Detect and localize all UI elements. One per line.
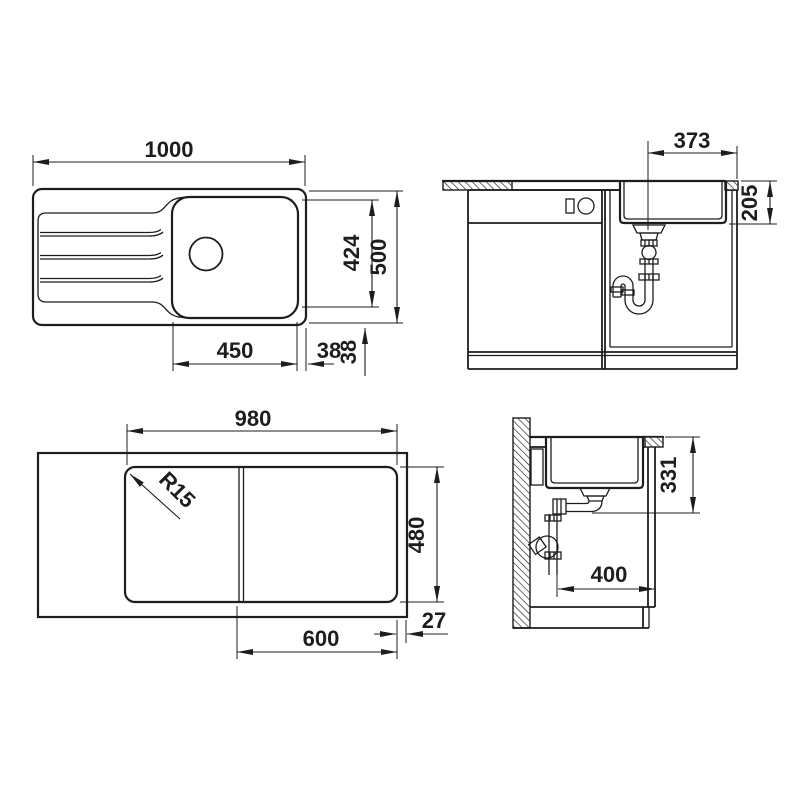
bowl-side-inner bbox=[551, 437, 638, 483]
dim-plan-bowl-width: 450 bbox=[217, 338, 254, 363]
bowl-section-inner bbox=[624, 182, 722, 219]
dim-under-base-depth: 480 bbox=[404, 517, 429, 554]
faucet-hole-symbol bbox=[566, 199, 574, 213]
underside-view: R15 980 480 600 27 bbox=[38, 406, 448, 659]
dim-under-edge-clearance: 27 bbox=[422, 608, 446, 633]
side-view: 331 400 bbox=[513, 418, 700, 628]
base-outline bbox=[38, 453, 407, 617]
cabinet-front bbox=[468, 190, 737, 369]
bowl-side-outer bbox=[546, 437, 643, 488]
dim-under-cutout-span: 600 bbox=[303, 626, 340, 651]
dim-front-bowl-height: 205 bbox=[737, 185, 762, 222]
front-view: 373 205 bbox=[443, 128, 777, 369]
wall-hatch bbox=[513, 418, 530, 628]
technical-drawing: 1000 424 500 450 38 38 bbox=[0, 0, 800, 800]
knob-symbol bbox=[578, 198, 594, 214]
dim-front-drain-offset: 373 bbox=[674, 128, 711, 153]
bowl-outline-plan bbox=[172, 197, 298, 318]
bowl-section-outer bbox=[620, 182, 726, 223]
plan-view: 1000 424 500 450 38 38 bbox=[33, 137, 403, 376]
dim-plan-overall-width: 1000 bbox=[145, 137, 194, 162]
dim-plan-rim-edge-gap: 38 bbox=[336, 340, 361, 364]
counter-hatch-left bbox=[443, 181, 512, 190]
drain-hole bbox=[190, 238, 223, 271]
dim-plan-overall-depth: 500 bbox=[366, 239, 391, 276]
cabinet-side bbox=[513, 447, 655, 628]
dim-side-rear-clearance: 400 bbox=[591, 562, 628, 587]
drain-trap-front bbox=[611, 225, 665, 314]
drawing-page: 1000 424 500 450 38 38 bbox=[0, 0, 800, 800]
sink-rim-outline bbox=[33, 189, 306, 325]
drainboard-grooves bbox=[40, 230, 163, 283]
dim-corner-radius: R15 bbox=[154, 467, 200, 513]
dim-plan-bowl-depth: 424 bbox=[339, 234, 364, 271]
counter-hatch-side bbox=[645, 437, 663, 447]
wall-rail bbox=[531, 449, 543, 485]
dim-side-outlet-height: 331 bbox=[656, 457, 681, 494]
drainboard-inner-edge bbox=[38, 213, 152, 302]
dim-under-base-width: 980 bbox=[235, 406, 272, 431]
